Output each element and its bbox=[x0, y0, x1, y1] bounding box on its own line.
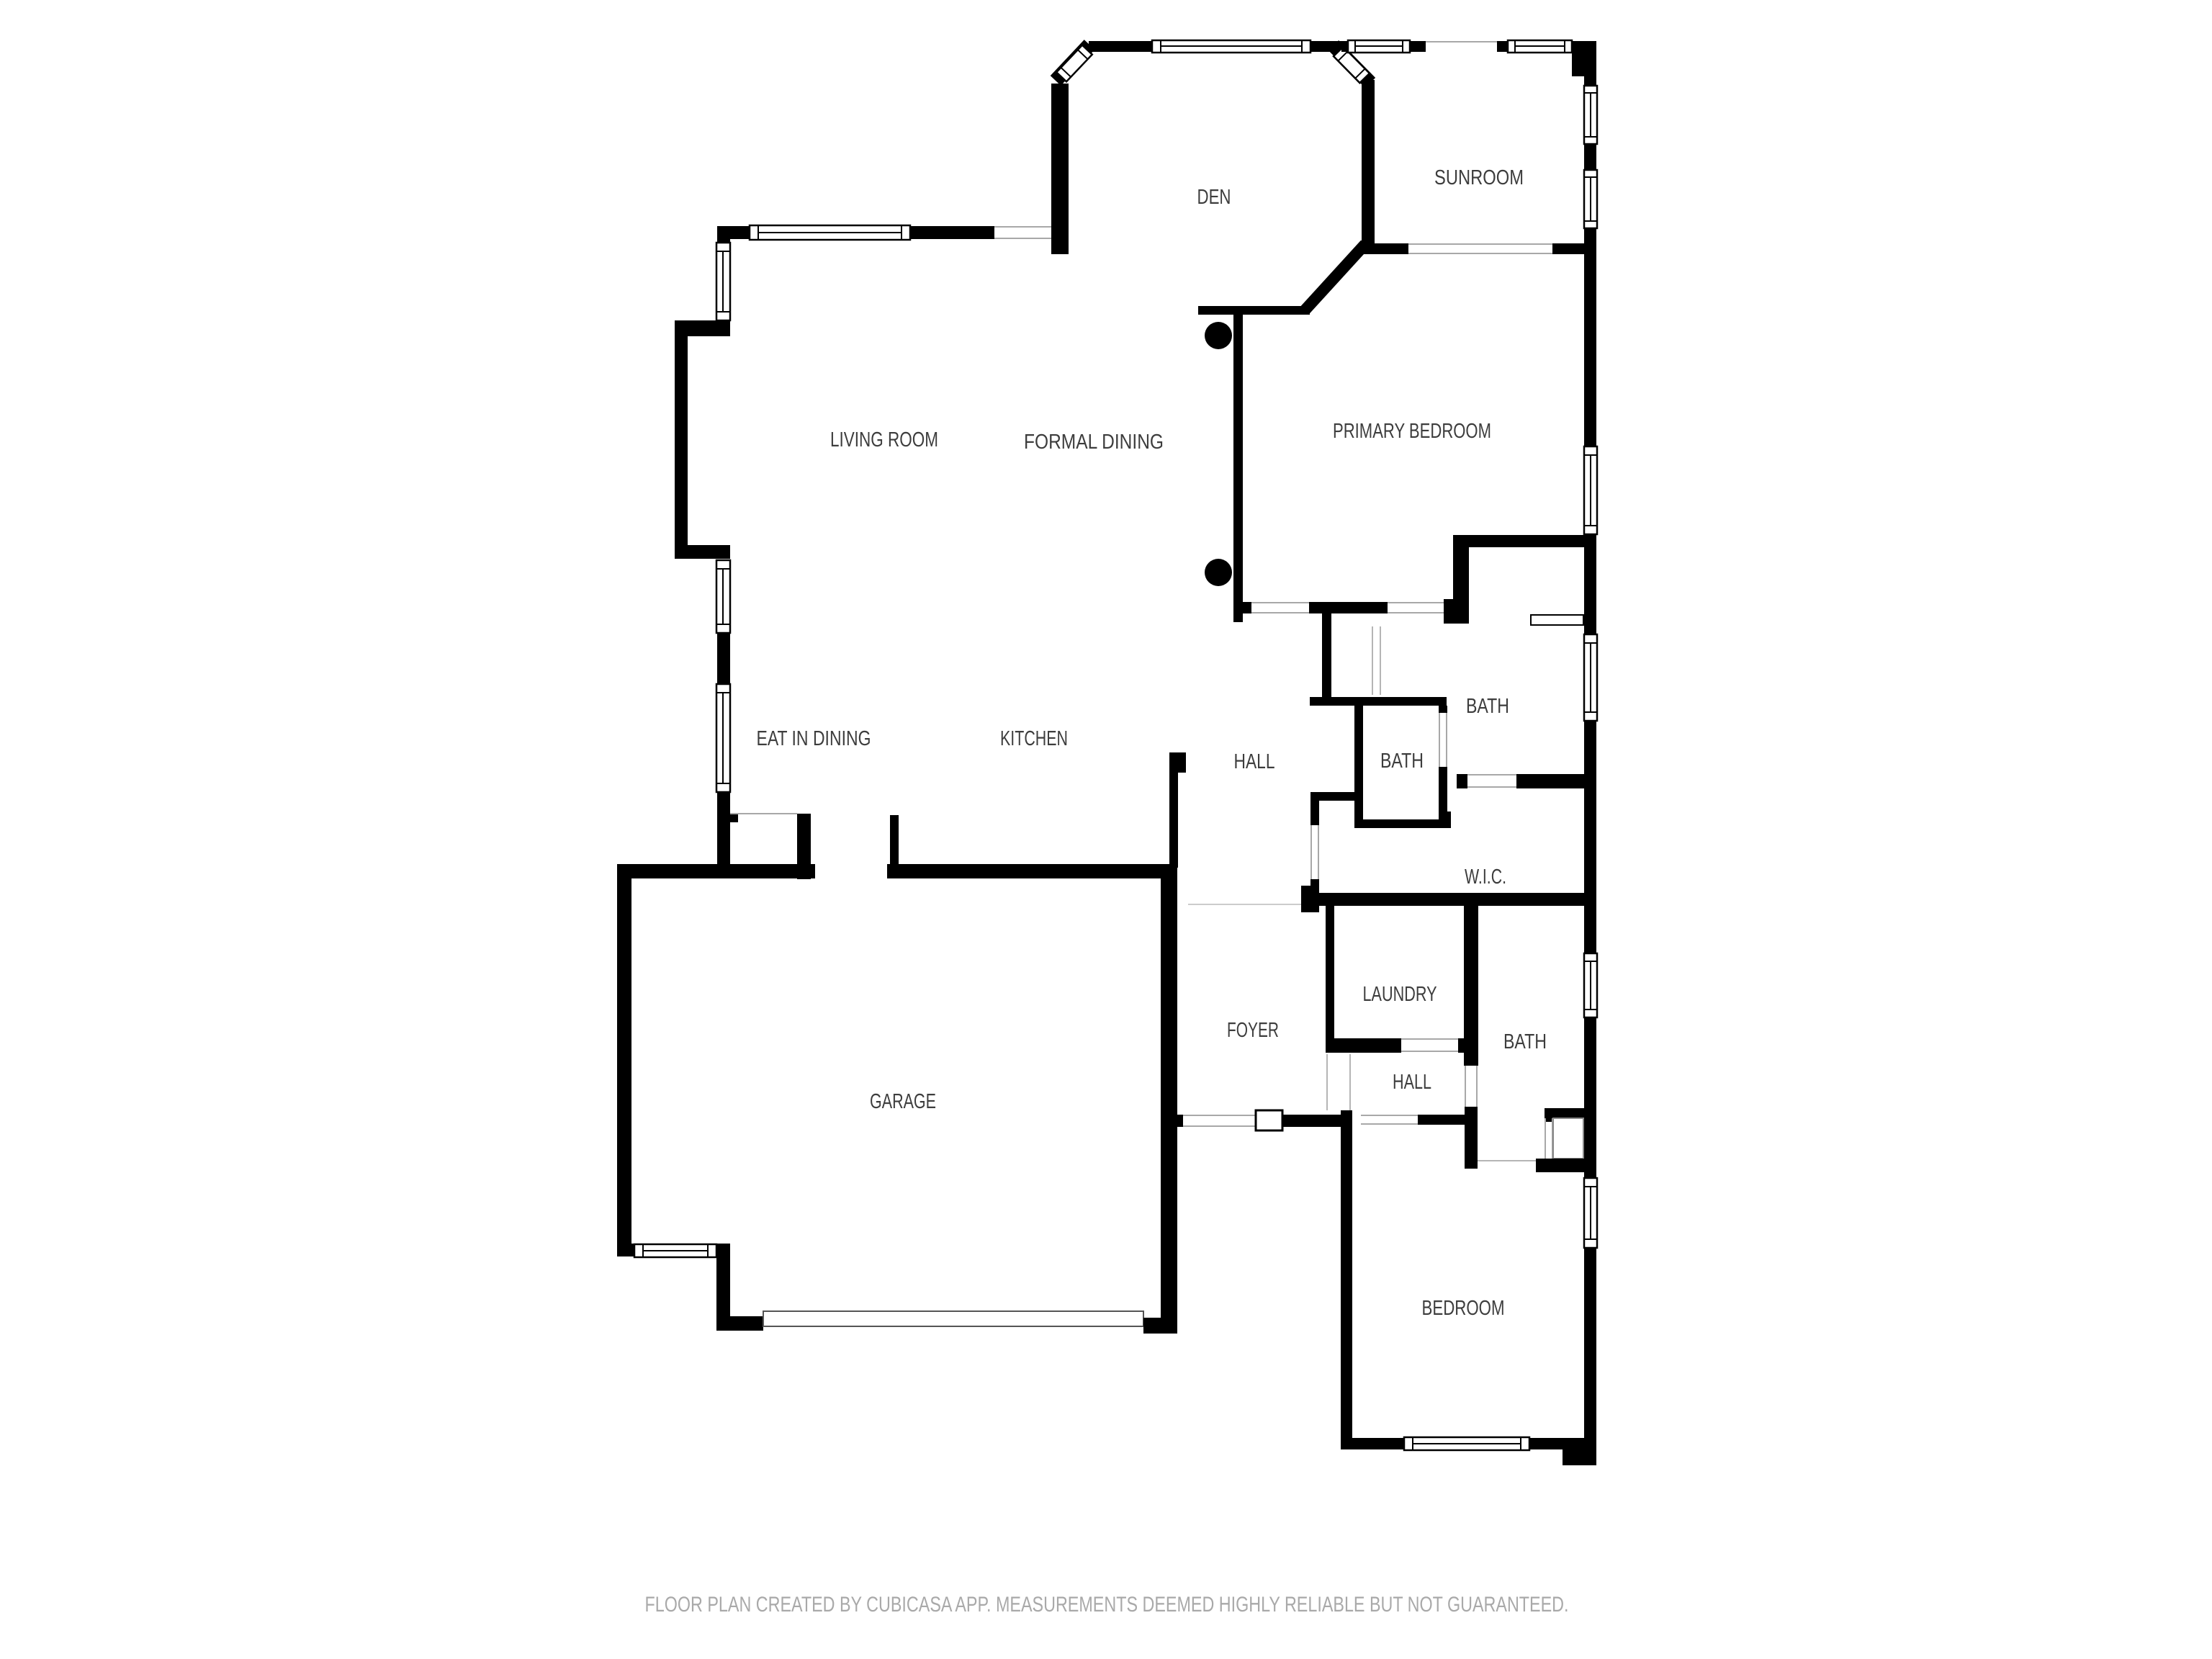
svg-text:FORMAL DINING: FORMAL DINING bbox=[1024, 431, 1164, 454]
svg-text:KITCHEN: KITCHEN bbox=[1000, 727, 1068, 750]
svg-text:DEN: DEN bbox=[1197, 186, 1231, 209]
svg-text:FLOOR PLAN CREATED BY CUBICASA: FLOOR PLAN CREATED BY CUBICASA APP. MEAS… bbox=[645, 1593, 1569, 1617]
svg-text:BEDROOM: BEDROOM bbox=[1422, 1297, 1505, 1320]
svg-text:HALL: HALL bbox=[1393, 1071, 1431, 1094]
svg-text:PRIMARY BEDROOM: PRIMARY BEDROOM bbox=[1333, 420, 1491, 443]
svg-text:LIVING ROOM: LIVING ROOM bbox=[830, 428, 938, 451]
svg-text:GARAGE: GARAGE bbox=[870, 1090, 936, 1113]
svg-text:BATH: BATH bbox=[1503, 1030, 1547, 1053]
svg-text:LAUNDRY: LAUNDRY bbox=[1363, 983, 1437, 1006]
svg-text:FOYER: FOYER bbox=[1227, 1019, 1279, 1042]
svg-text:EAT IN DINING: EAT IN DINING bbox=[757, 727, 871, 750]
svg-text:HALL: HALL bbox=[1234, 750, 1275, 773]
svg-text:BATH: BATH bbox=[1466, 695, 1509, 718]
svg-text:W.I.C.: W.I.C. bbox=[1465, 866, 1506, 889]
svg-text:BATH: BATH bbox=[1380, 750, 1424, 773]
svg-text:SUNROOM: SUNROOM bbox=[1434, 166, 1524, 189]
